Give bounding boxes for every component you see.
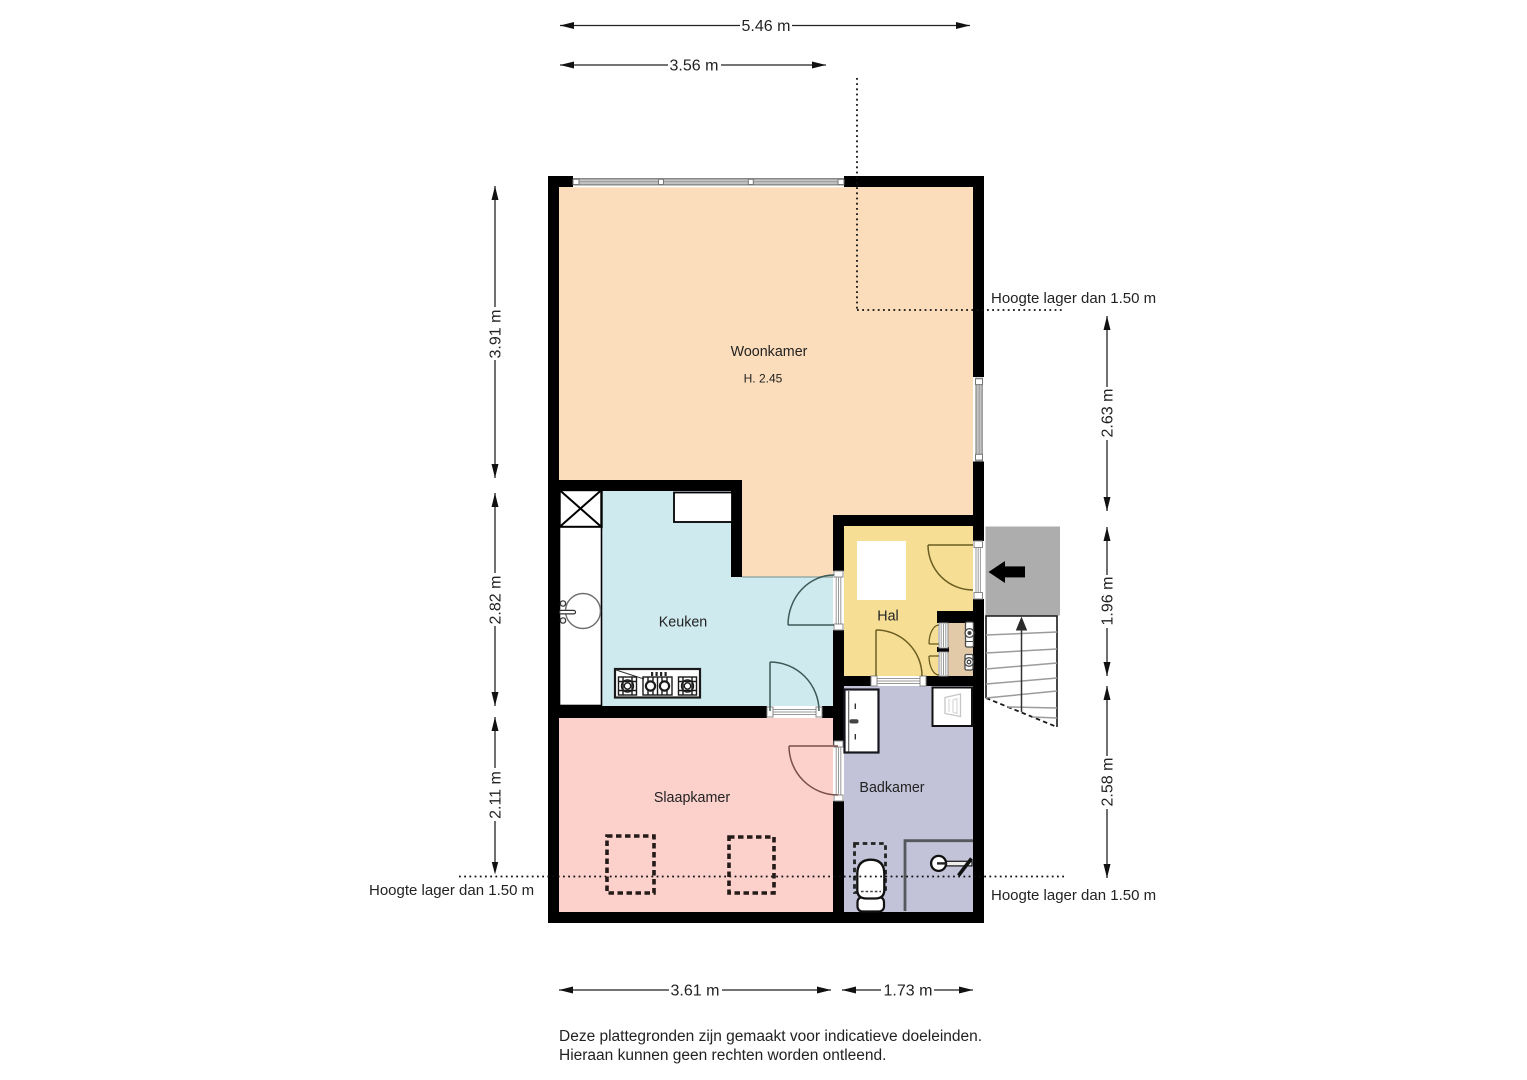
svg-text:Badkamer: Badkamer (859, 780, 924, 796)
svg-text:Hoogte lager dan 1.50 m: Hoogte lager dan 1.50 m (991, 290, 1156, 307)
svg-text:Hieraan kunnen geen rechten wo: Hieraan kunnen geen rechten worden ontle… (559, 1047, 886, 1064)
svg-text:1.96 m: 1.96 m (1100, 577, 1117, 626)
svg-text:1.73 m: 1.73 m (884, 983, 933, 1000)
svg-text:Hal: Hal (877, 609, 898, 625)
svg-text:Slaapkamer: Slaapkamer (654, 790, 731, 806)
svg-text:H. 2.45: H. 2.45 (744, 372, 783, 386)
svg-text:2.63 m: 2.63 m (1100, 389, 1117, 438)
svg-text:Keuken: Keuken (659, 615, 708, 631)
svg-text:3.91 m: 3.91 m (488, 310, 505, 359)
svg-text:Deze plattegronden zijn gemaak: Deze plattegronden zijn gemaakt voor ind… (559, 1028, 982, 1045)
svg-text:2.58 m: 2.58 m (1100, 758, 1117, 807)
svg-text:3.61 m: 3.61 m (671, 983, 720, 1000)
svg-text:2.11 m: 2.11 m (488, 771, 505, 819)
svg-text:Hoogte lager dan 1.50 m: Hoogte lager dan 1.50 m (369, 882, 534, 899)
svg-text:5.46 m: 5.46 m (742, 18, 791, 35)
svg-text:Woonkamer: Woonkamer (731, 344, 808, 360)
svg-text:3.56 m: 3.56 m (670, 58, 719, 75)
svg-text:Hoogte lager dan 1.50 m: Hoogte lager dan 1.50 m (991, 887, 1156, 904)
svg-text:2.82 m: 2.82 m (488, 576, 505, 625)
